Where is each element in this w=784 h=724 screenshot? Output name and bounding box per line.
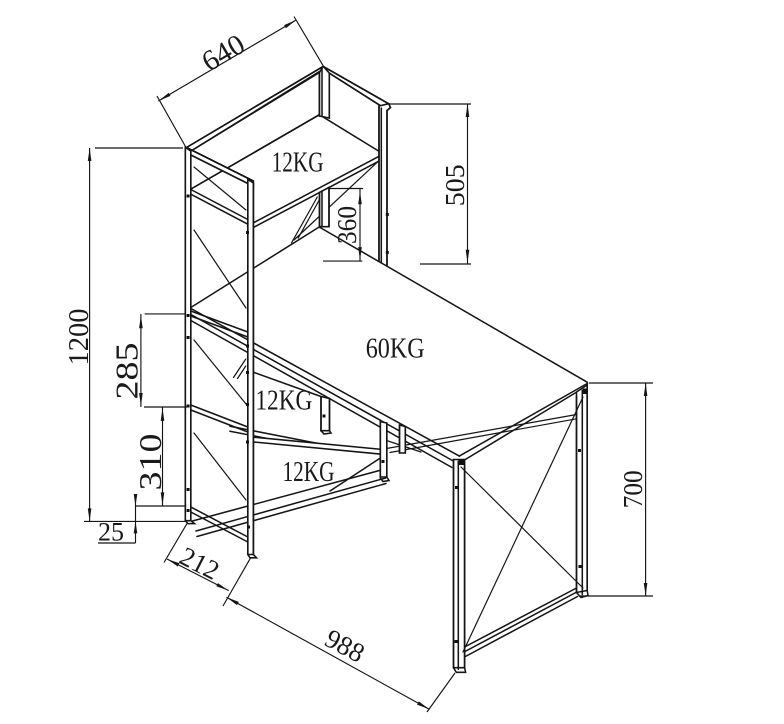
svg-text:360: 360 (332, 206, 362, 244)
svg-text:700: 700 (618, 470, 648, 508)
svg-text:25: 25 (98, 518, 124, 547)
svg-text:285: 285 (109, 343, 145, 400)
svg-text:60KG: 60KG (366, 333, 425, 364)
svg-text:1200: 1200 (63, 309, 95, 366)
svg-text:310: 310 (132, 434, 168, 491)
svg-text:12KG: 12KG (283, 457, 335, 488)
svg-text:12KG: 12KG (255, 386, 312, 417)
svg-text:12KG: 12KG (272, 148, 324, 179)
svg-text:505: 505 (440, 164, 470, 206)
